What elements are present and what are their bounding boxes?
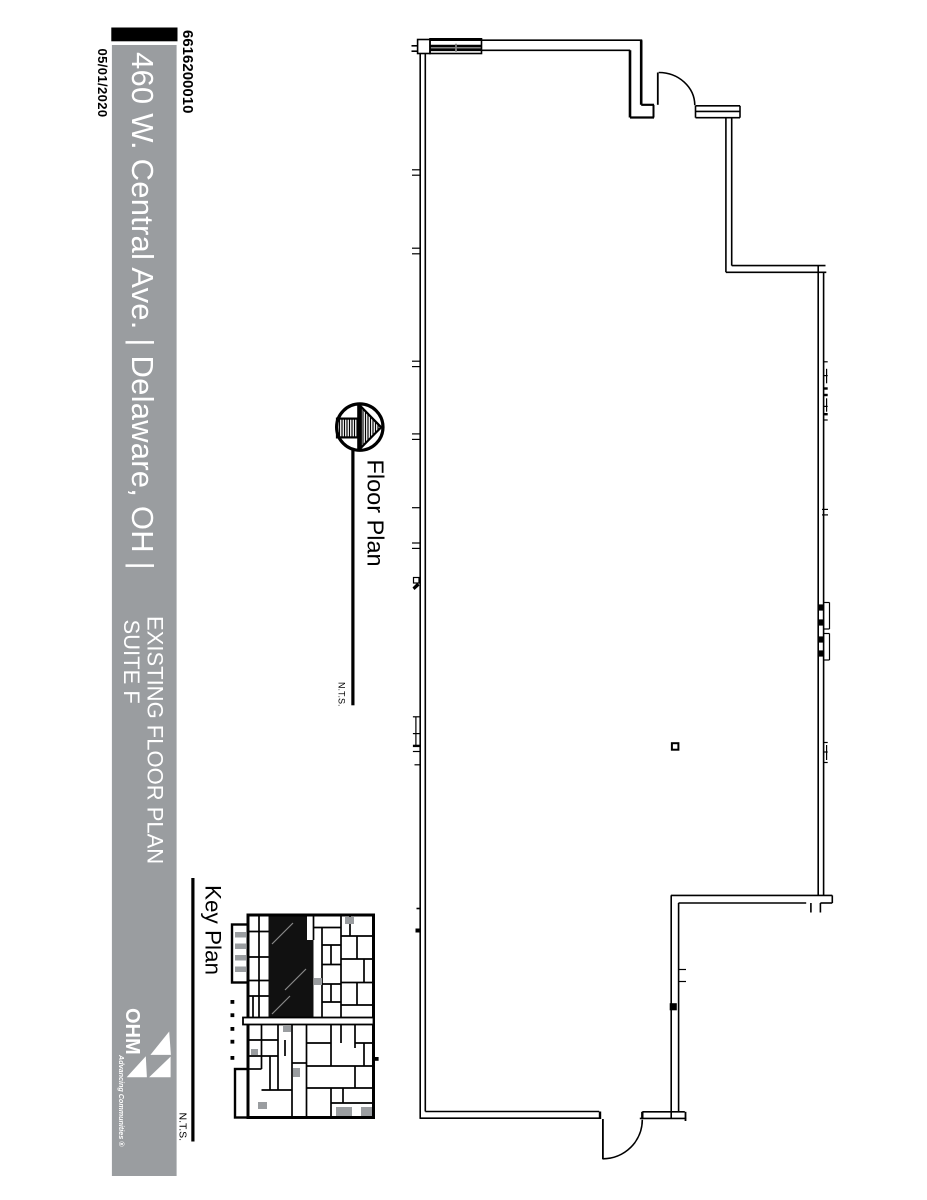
svg-text:EXISTING FLOOR PLAN: EXISTING FLOOR PLAN <box>143 616 168 864</box>
svg-text:Advancing Communities ®: Advancing Communities ® <box>117 1054 126 1147</box>
svg-text:05/01/2020: 05/01/2020 <box>95 49 110 118</box>
svg-text:460 W. Central Ave. | Delawar: 460 W. Central Ave. | Delaware, OH | <box>125 52 160 570</box>
svg-text:N.T.S.: N.T.S. <box>337 682 347 707</box>
svg-text:N.T.S.: N.T.S. <box>177 1113 189 1142</box>
svg-text:SUITE F: SUITE F <box>119 620 144 704</box>
svg-text:6616200010: 6616200010 <box>179 30 196 113</box>
svg-text:Key Plan: Key Plan <box>201 885 226 975</box>
svg-text:Floor Plan: Floor Plan <box>363 460 389 567</box>
svg-text:OHM: OHM <box>121 1008 143 1055</box>
